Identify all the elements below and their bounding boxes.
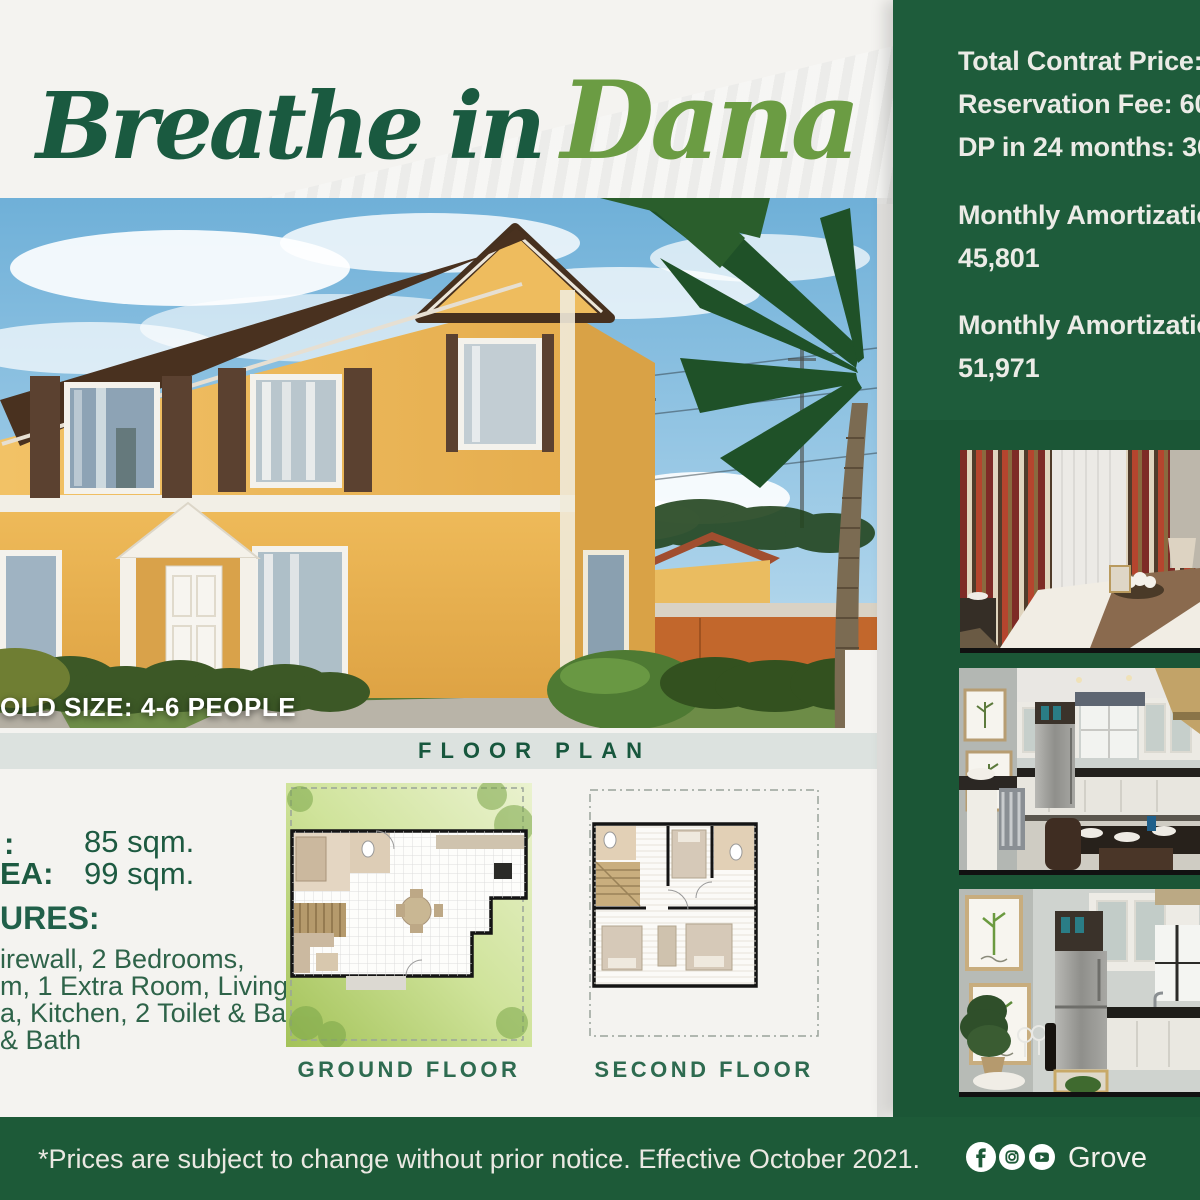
household-size-label: OLD SIZE: 4-6 PEOPLE [0,692,296,723]
title-script-part1: Breathe in [36,72,542,180]
youtube-icon[interactable] [1029,1144,1055,1175]
kitchen-photo-illustration [959,668,1200,870]
floorplan-heading: FLOOR PLAN [418,738,651,764]
features-heading: URES: [0,900,100,937]
ground-floor-plan-drawing [286,783,532,1047]
page-title: Breathe in Dana [36,58,857,184]
monthly-amortization-1-label: Monthly Amortizatio [958,200,1200,231]
features-line: & Bath [0,1025,81,1056]
reservation-fee: Reservation Fee: 60 [958,89,1200,120]
social-handle: Grove [1068,1142,1147,1175]
downpayment: DP in 24 months: 36 [958,132,1200,163]
flyer-canvas: Breathe in Dana [0,0,1200,1200]
monthly-amortization-1-value: 45,801 [958,243,1039,274]
ground-floor-label: GROUND FLOOR [286,1057,532,1083]
monthly-amortization-2-value: 51,971 [958,353,1039,384]
second-floor-plan [586,786,822,1045]
kitchen-detail-photo-illustration [959,889,1200,1092]
lot-area-value: 99 sqm. [84,856,194,892]
panel-gap-shadow [877,198,893,1117]
total-contract-price: Total Contrat Price: [958,46,1200,77]
kitchen-detail-photo [959,889,1200,1097]
house-photo-illustration [0,198,877,728]
bedroom-photo [960,450,1200,653]
title-script-part2: Dana [561,58,857,184]
facebook-icon[interactable] [966,1142,996,1177]
monthly-amortization-2-label: Monthly Amortizatio [958,310,1200,341]
instagram-icon[interactable] [999,1144,1025,1175]
lot-area-label: EA: [0,856,53,892]
second-floor-plan-drawing [586,786,822,1040]
bedroom-photo-illustration [960,450,1200,648]
second-floor-label: SECOND FLOOR [586,1057,822,1083]
price-disclaimer: *Prices are subject to change without pr… [38,1144,920,1175]
photo-corner-notch [845,650,878,728]
house-photo [0,198,877,728]
floor-area-value: 85 sqm. [84,824,194,860]
kitchen-photo [959,668,1200,875]
ground-floor-plan [286,783,532,1052]
